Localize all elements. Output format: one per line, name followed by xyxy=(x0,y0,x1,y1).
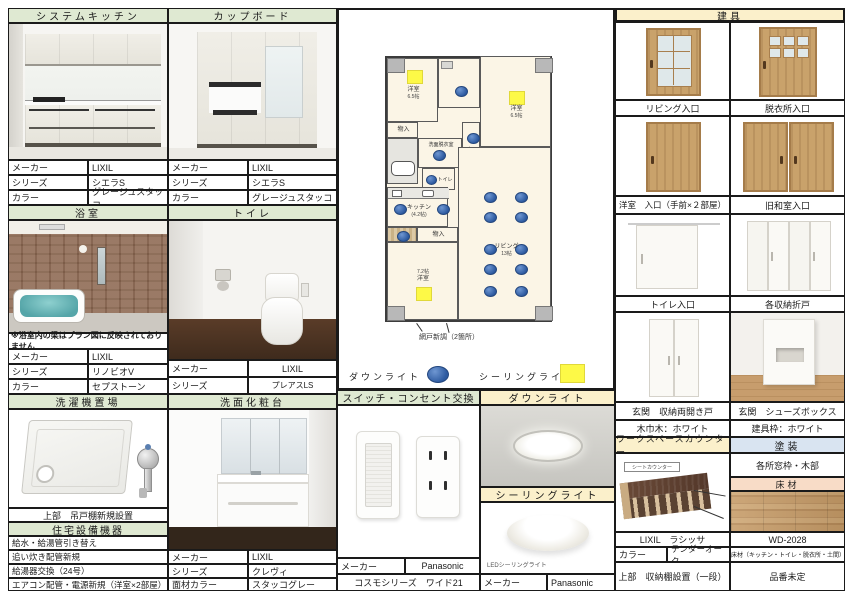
downlight-marker xyxy=(455,86,468,97)
dressing-door-pane xyxy=(783,36,795,46)
plan-pillar xyxy=(387,306,405,321)
kitchen-upper-cabinets xyxy=(25,34,161,66)
counter-image: シートカウンター xyxy=(615,453,730,532)
vanity-mirror xyxy=(221,418,307,474)
section-title-flooring: 床材 xyxy=(730,477,845,491)
fitting-label-washitsu: 旧和室入口 xyxy=(730,196,845,214)
laundry-faucet-spout xyxy=(139,488,147,498)
downlight-marker xyxy=(397,231,410,242)
dressing-door-pane xyxy=(769,48,781,58)
section-title-switches: スイッチ・コンセント交換 xyxy=(337,390,480,405)
plan-toilet-label: トイレ xyxy=(435,177,455,184)
laundry-image xyxy=(8,409,168,508)
toilet-floor xyxy=(169,319,337,360)
floor-plan: 洋室6.5帖 洋室6.5帖 物入 洗面脱衣室 トイレ 廊下 xyxy=(337,8,615,390)
vanity-floor xyxy=(169,527,337,550)
outlet-slot xyxy=(429,481,432,490)
bath-color-label: カラー xyxy=(8,379,88,394)
section-title-bath: 浴室 xyxy=(8,205,168,220)
bath-vent xyxy=(39,224,65,230)
cupboard-color-label: カラー xyxy=(168,190,248,205)
toilet-image xyxy=(168,220,337,360)
switch-plate xyxy=(356,431,400,519)
outlet-plate xyxy=(416,436,460,518)
bath-note: ※浴室内の梁はプラン図に反映されておりません xyxy=(8,333,168,349)
cupboard-floor xyxy=(169,148,337,160)
bath-series-label: シリーズ xyxy=(8,364,88,379)
laundry-faucet-handle xyxy=(145,444,151,450)
flooring-usage: 床材（キッチン・トイレ・脱衣所・土間） xyxy=(730,547,845,562)
plan-kitchen-sink xyxy=(422,190,434,197)
section-title-paint: 塗装 xyxy=(730,437,845,453)
door-pull xyxy=(771,252,773,261)
dressing-door-pane xyxy=(769,36,781,46)
counter-slab xyxy=(620,473,713,527)
fitting-image-washitsu-door xyxy=(730,116,845,196)
vanity-mirror-seam xyxy=(279,419,280,475)
toilet-maker-value: LIXIL xyxy=(248,360,337,377)
section-title-kitchen: システムキッチン xyxy=(8,8,168,23)
toilet-remote xyxy=(301,283,309,297)
folding-door-panel xyxy=(810,221,831,291)
plan-kitchen-label: キッチン(4.2帖) xyxy=(396,205,442,219)
downlight-marker xyxy=(467,133,480,144)
door-pull xyxy=(813,252,815,261)
ceiling-light-lamp xyxy=(507,515,589,551)
living-door xyxy=(646,28,701,96)
plan-pillar xyxy=(387,58,405,73)
cupboard-maker-value: LIXIL xyxy=(248,160,337,175)
fitting-label-entry-storage: 玄関 収納両開き戸 xyxy=(615,402,730,420)
equipment-item: 給水・給湯管引き替え xyxy=(8,536,168,550)
kitchen-wall xyxy=(9,24,23,160)
fitting-label-toilet-door: トイレ入口 xyxy=(615,296,730,312)
section-title-cupboard: カップボード xyxy=(168,8,337,23)
switches-maker-value: Panasonic xyxy=(405,558,480,574)
downlight-marker xyxy=(515,264,528,275)
door-knob xyxy=(780,156,783,164)
laundry-caption: 上部 吊戸棚新規設置 xyxy=(8,508,168,522)
washitsu-door-right xyxy=(789,122,834,192)
fitting-image-living-door xyxy=(615,22,730,100)
equipment-item: エアコン配管・電源新規（洋室×2部屋） xyxy=(8,578,168,591)
section-title-equipment: 住宅設備機器 xyxy=(8,522,168,536)
cupboard-series-label: シリーズ xyxy=(168,175,248,190)
entry-storage-door-left xyxy=(649,319,674,397)
bath-maker-label: メーカー xyxy=(8,349,88,364)
ceiling-light-marker xyxy=(509,91,525,105)
kitchen-series-label: シリーズ xyxy=(8,175,88,190)
plan-bathtub xyxy=(391,161,415,176)
laundry-faucet-flange xyxy=(137,448,159,470)
switch-rocker xyxy=(365,443,392,507)
kitchen-maker-value: LIXIL xyxy=(88,160,168,175)
laundry-pan xyxy=(21,420,133,494)
fitting-label-west: 洋室 入口（手前×２部屋） xyxy=(615,196,730,214)
outlet-slot xyxy=(429,451,432,460)
plan-kitchen: キッチン(4.2帖) xyxy=(387,187,448,227)
bath-ceiling xyxy=(9,221,168,234)
flooring-product: WD-2028 xyxy=(730,532,845,547)
toilet-paper-holder xyxy=(215,269,231,281)
flooring-part-no: 品番未定 xyxy=(730,562,845,591)
plan-washroom: 洗面脱衣室 xyxy=(418,138,462,168)
bath-tub-water xyxy=(20,295,78,317)
door-pull xyxy=(668,356,670,365)
equipment-item: 給湯器交換（24号） xyxy=(8,564,168,578)
washitsu-door-left xyxy=(743,122,788,192)
plan-room-west1-label: 洋室6.5帖 xyxy=(388,87,439,101)
legend-ceiling-icon xyxy=(560,364,585,383)
kitchen-stove xyxy=(33,97,65,102)
plan-pillar xyxy=(535,58,553,73)
fitting-label-living: リビング入口 xyxy=(615,100,730,116)
fitting-label-folding: 各収納折戸 xyxy=(730,296,845,312)
downlight-marker xyxy=(484,212,497,223)
vanity-face-color-value: スタッコグレー xyxy=(248,578,337,591)
ceiling-light-image: LEDシーリングライト xyxy=(480,502,615,574)
folding-door-panel xyxy=(789,221,810,291)
dressing-door-pane xyxy=(797,36,809,46)
bath-maker-value: LIXIL xyxy=(88,349,168,364)
fitting-image-dressing-door xyxy=(730,22,845,100)
vanity-handle xyxy=(228,502,298,505)
bath-light xyxy=(79,245,87,253)
equipment-item: 追い炊き配管新規 xyxy=(8,550,168,564)
toilet-paper-roll xyxy=(217,281,229,291)
ceiling-light-marker xyxy=(416,287,432,301)
toilet-series-label: シリーズ xyxy=(168,377,248,394)
plan-balcony-strip xyxy=(387,227,417,242)
vanity-faucet xyxy=(251,471,261,475)
switches-series: コスモシリーズ ワイド21 xyxy=(337,574,480,591)
paint-target: 各所窓枠・木部 xyxy=(730,453,845,477)
vanity-face-color-label: 面材カラー xyxy=(168,578,248,591)
vanity-image xyxy=(168,409,337,550)
section-title-laundry: 洗濯機置場 xyxy=(8,394,168,409)
kitchen-handle xyxy=(95,109,155,111)
downlight-marker xyxy=(484,286,497,297)
door-pull xyxy=(641,254,643,264)
vanity-series-value: クレヴィ xyxy=(248,564,337,578)
cupboard-color-value: グレージュスタッコ xyxy=(248,190,337,205)
doorframe-spec: 建具枠：ホワイト xyxy=(730,420,845,437)
door-knob xyxy=(651,156,654,164)
flooring-plank-joints xyxy=(731,492,845,532)
fitting-image-entry-storage xyxy=(615,312,730,402)
downlight-image xyxy=(480,405,615,487)
folding-door-panel xyxy=(768,221,789,291)
toilet-door xyxy=(636,225,698,289)
fitting-image-toilet-door xyxy=(615,214,730,296)
kitchen-color-label: カラー xyxy=(8,190,88,205)
bath-mirror xyxy=(97,247,106,285)
dressing-door-pane xyxy=(797,48,809,58)
dressing-door-pane xyxy=(783,48,795,58)
cupboard-shelf-line xyxy=(213,110,257,115)
kitchen-floor xyxy=(9,147,168,160)
plan-ps-box xyxy=(441,61,453,69)
switches-maker-label: メーカー xyxy=(337,558,405,574)
kitchen-handle xyxy=(29,109,89,111)
bath-color-value: セプストーン xyxy=(88,379,168,394)
renovation-spec-sheet: システムキッチン カップボード メーカー LIXIL シリーズ シエラS カラー… xyxy=(0,0,853,596)
vanity-mirror-seam xyxy=(250,419,251,475)
plan-note-arrow xyxy=(446,323,450,333)
fitting-image-folding-doors xyxy=(730,214,845,296)
plan-room-west3-label: 7.2帖洋室 xyxy=(398,269,448,283)
counter-image-label: シートカウンター xyxy=(624,462,680,472)
ceiling-light-caption: LEDシーリングライト xyxy=(487,560,547,569)
cupboard-image xyxy=(168,23,337,160)
toilet-series-value: プレアスLS xyxy=(248,377,337,394)
plan-note: 網戸新調（2箇所） xyxy=(399,334,499,341)
counter-note: 上部 収納棚設置（一段） xyxy=(615,562,730,591)
section-title-counter: ワークスペースカウンター xyxy=(615,437,730,453)
bath-image xyxy=(8,220,168,333)
counter-color-label: カラー xyxy=(615,547,667,562)
vanity-cabinet xyxy=(217,483,309,527)
shoebox-niche xyxy=(776,348,804,362)
shoebox-cabinet xyxy=(763,319,815,385)
door-knob xyxy=(794,156,797,164)
legend-downlight-label: ダウンライト xyxy=(349,370,421,383)
downlight-lamp xyxy=(513,430,583,462)
cupboard-series-value: シエラS xyxy=(248,175,337,190)
section-title-vanity: 洗面化粧台 xyxy=(168,394,337,409)
vanity-maker-value: LIXIL xyxy=(248,550,337,564)
toilet-bowl xyxy=(261,297,303,345)
switches-image xyxy=(337,405,480,558)
downlight-marker xyxy=(433,150,446,161)
kitchen-color-value: グレージュスタッコ xyxy=(88,190,168,205)
plan-kitchen-stove xyxy=(392,190,402,197)
downlight-marker xyxy=(484,264,497,275)
door-knob xyxy=(650,60,653,68)
downlight-marker xyxy=(515,192,528,203)
section-title-toilet: トイレ xyxy=(168,205,337,220)
plan-living: リビング13帖 xyxy=(458,147,551,320)
plan-entry xyxy=(438,58,480,108)
legend-downlight-icon xyxy=(427,366,449,383)
plan-bathroom xyxy=(387,138,418,184)
living-door-muntin xyxy=(673,35,674,85)
kitchen-maker-label: メーカー xyxy=(8,160,88,175)
section-title-fittings: 建具 xyxy=(615,8,845,22)
downlight-marker xyxy=(515,286,528,297)
bath-tub-rim xyxy=(13,289,85,323)
outlet-slot xyxy=(444,451,447,460)
west-room-door xyxy=(646,122,701,192)
flooring-image xyxy=(730,491,845,532)
bath-series-value: リノビオV xyxy=(88,364,168,379)
cupboard-glass-doors xyxy=(265,46,303,118)
plan-closet-4: 物入 xyxy=(417,227,458,242)
cupboard-maker-label: メーカー xyxy=(168,160,248,175)
vanity-maker-label: メーカー xyxy=(168,550,248,564)
kitchen-base-cabinets xyxy=(25,105,161,143)
plan-pillar xyxy=(535,306,553,321)
toilet-maker-label: メーカー xyxy=(168,360,248,377)
plan-living-label: リビング13帖 xyxy=(479,244,534,258)
folding-door-panel xyxy=(747,221,768,291)
downlight-marker xyxy=(484,192,497,203)
fitting-image-shoebox xyxy=(730,312,845,402)
vanity-series-label: シリーズ xyxy=(168,564,248,578)
outlet-slot xyxy=(444,481,447,490)
ceiling-light-marker xyxy=(407,70,423,84)
plan-room-west2-label: 洋室6.5帖 xyxy=(481,106,552,120)
living-door-glass xyxy=(657,35,692,87)
door-knob xyxy=(763,61,766,69)
plan-closet-label: 物入 xyxy=(388,127,419,134)
fitting-image-west-door xyxy=(615,116,730,196)
plan-washroom-label: 洗面脱衣室 xyxy=(419,142,463,149)
door-pull xyxy=(678,356,680,365)
fitting-label-shoebox: 玄関 シューズボックス xyxy=(730,402,845,420)
kitchen-drawer-line xyxy=(29,127,155,129)
dressing-door xyxy=(759,27,817,97)
counter-color-value: テンダーオーク xyxy=(667,547,730,562)
fitting-label-dressing: 脱衣所入口 xyxy=(730,100,845,116)
kitchen-image xyxy=(8,23,168,160)
plan-closet-label: 物入 xyxy=(418,232,459,239)
downlight-marker xyxy=(515,212,528,223)
section-title-downlight: ダウンライト xyxy=(480,390,615,405)
plan-closet-1: 物入 xyxy=(387,122,418,138)
vanity-basin xyxy=(217,474,309,483)
ceiling-light-maker-label: メーカー xyxy=(480,574,547,591)
ceiling-light-maker-value: Panasonic xyxy=(547,574,615,591)
entry-storage-door-right xyxy=(674,319,699,397)
plan-note-arrow xyxy=(416,323,423,332)
kitchen-backsplash xyxy=(25,66,161,100)
section-title-ceiling-light: シーリングライト xyxy=(480,487,615,502)
